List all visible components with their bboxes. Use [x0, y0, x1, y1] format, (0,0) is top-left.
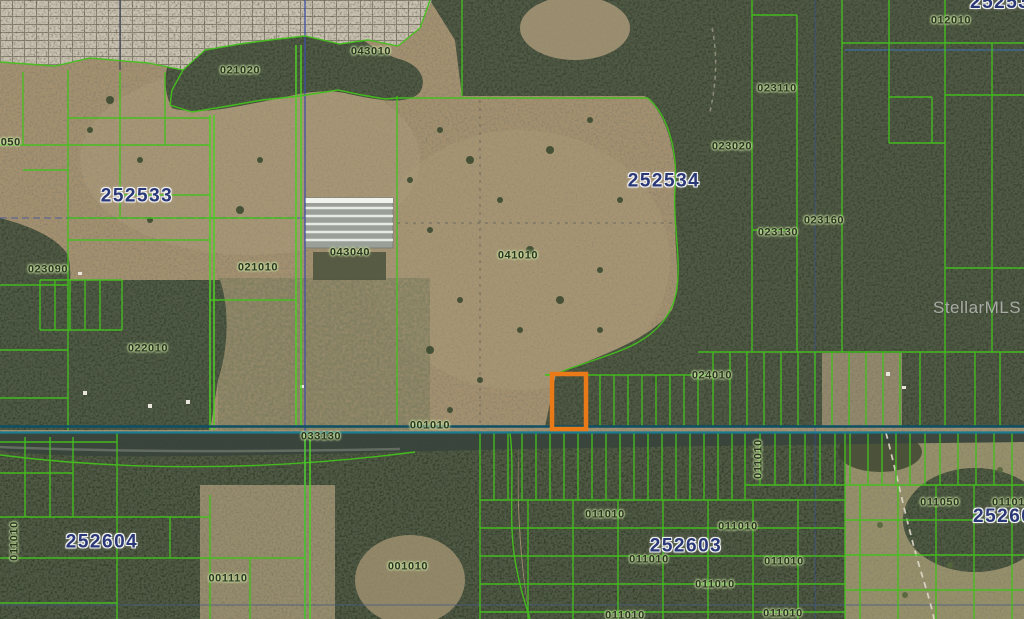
parcel-label: 021020: [220, 66, 260, 77]
parcel-label: 001010: [388, 562, 428, 573]
section-label: 252604: [66, 533, 138, 552]
section-label: 252534: [628, 172, 700, 191]
parcel-label: 033130: [301, 432, 341, 443]
parcel-label: 001010: [410, 421, 450, 432]
parcel-label: 024010: [692, 371, 732, 382]
parcel-label: 011050: [920, 498, 960, 509]
aerial-parcel-map: 252533 252534 252604 252603 25253 25260 …: [0, 0, 1024, 619]
parcel-label: 023160: [804, 216, 844, 227]
parcel-label: 011010: [629, 555, 669, 566]
parcel-label: 021010: [238, 263, 278, 274]
section-label: 25260: [973, 507, 1024, 526]
parcel-label: 3050: [0, 138, 21, 149]
parcel-label: 043010: [351, 47, 391, 58]
parcel-label: 011010: [585, 510, 625, 521]
parcel-label: 011010: [718, 522, 758, 533]
parcel-label: 001110: [208, 574, 247, 585]
parcel-label: 011010: [605, 611, 645, 619]
section-label: 252533: [101, 187, 173, 206]
parcel-label: 012010: [931, 16, 971, 27]
watermark: StellarMLS: [933, 299, 1021, 316]
parcel-label: 023090: [28, 265, 68, 276]
parcel-label: 011010: [10, 521, 21, 561]
parcel-label: 041010: [498, 251, 538, 262]
parcel-label: 043040: [330, 248, 370, 259]
parcel-label: 011010: [764, 557, 804, 568]
parcel-label: 011010: [763, 609, 803, 619]
parcel-label: 023130: [758, 228, 798, 239]
industrial-building: [305, 198, 393, 280]
parcel-label: 023020: [712, 142, 752, 153]
parcel-label: 022010: [128, 344, 168, 355]
section-label: 25253: [970, 0, 1024, 12]
parcel-label: 011010: [695, 580, 735, 591]
parcel-label: 011010: [992, 498, 1024, 509]
parcel-label: 023110: [757, 84, 797, 95]
map-canvas: [0, 0, 1024, 619]
parcel-label: 011010: [754, 439, 765, 479]
